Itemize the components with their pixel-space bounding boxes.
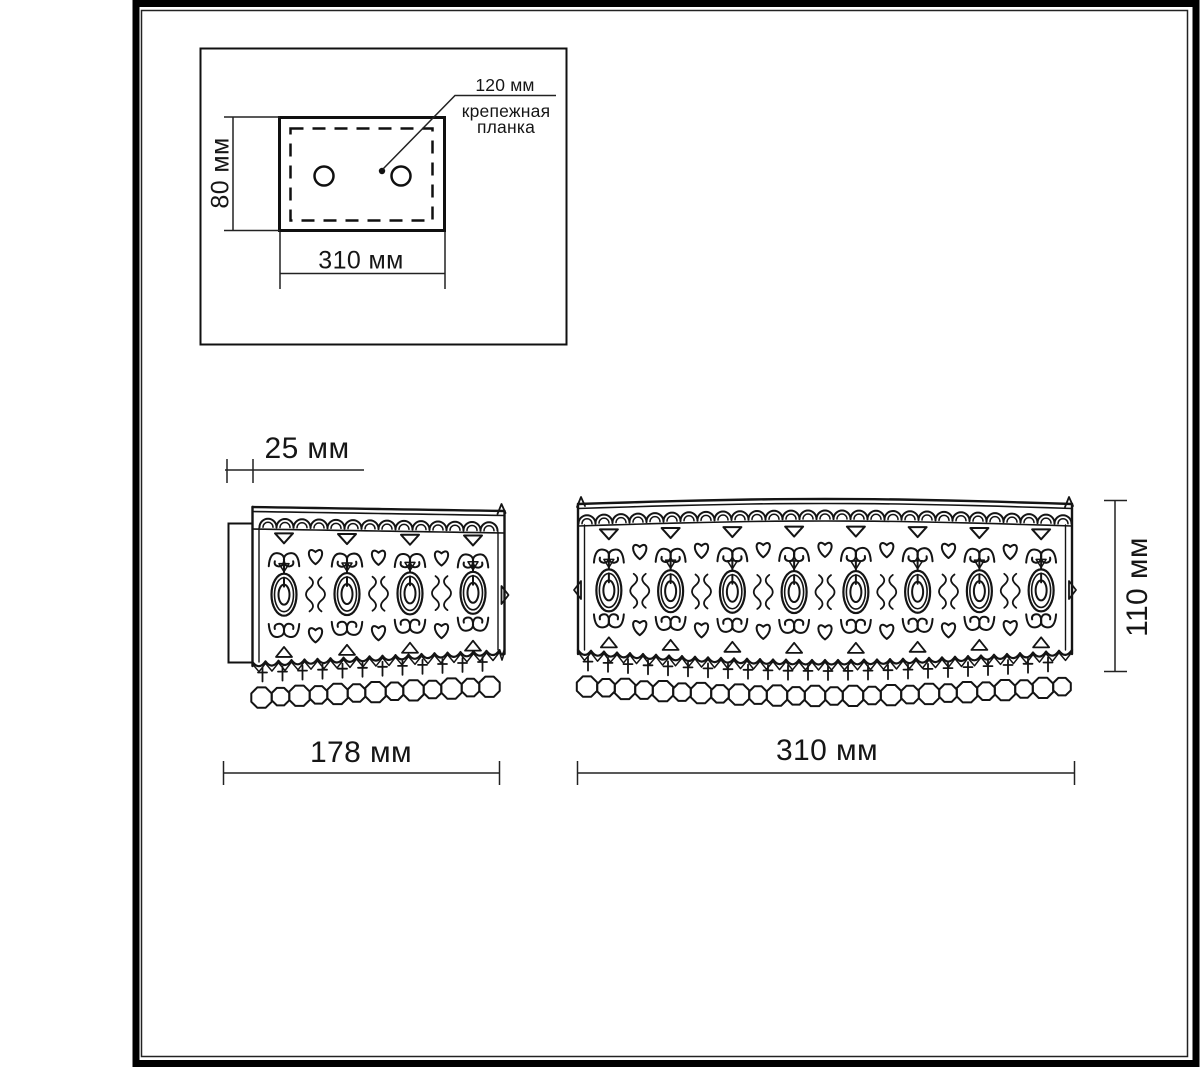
mounting-plate-outline [280, 118, 445, 231]
lamp-front-view [574, 497, 1076, 706]
inset-width-label: 310 мм [318, 247, 403, 276]
callout-distance-label: 120 мм [475, 77, 534, 93]
front-height-label: 110 мм [1121, 537, 1155, 637]
mounting-hole-right [392, 167, 411, 186]
front-width-label: 310 мм [776, 734, 878, 768]
side-depth-label: 25 мм [265, 432, 350, 466]
callout-part-label: крепежная планка [462, 103, 551, 135]
frame-inner [142, 11, 1188, 1057]
lamp-side-view [251, 504, 508, 708]
inset-height-label: 80 мм [207, 137, 236, 208]
side-width-label: 178 мм [310, 736, 412, 770]
drawing-svg [0, 0, 1200, 1068]
wall-bracket-outline [229, 524, 253, 663]
callout-part-line2: планка [462, 119, 551, 135]
wall-bracket-side [229, 524, 253, 663]
technical-drawing-page: 120 мм крепежная планка 80 мм 310 мм 25 … [0, 0, 1200, 1068]
mounting-hole-left [315, 167, 334, 186]
